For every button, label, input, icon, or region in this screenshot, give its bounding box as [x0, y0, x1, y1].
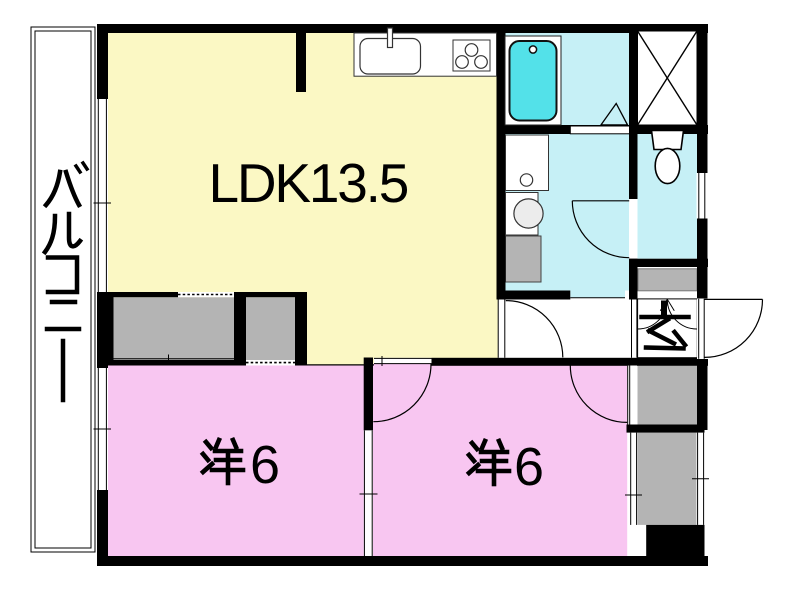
svg-text:6: 6 [514, 437, 544, 497]
svg-text:LDK13.5: LDK13.5 [209, 152, 408, 214]
svg-text:6: 6 [250, 435, 280, 495]
